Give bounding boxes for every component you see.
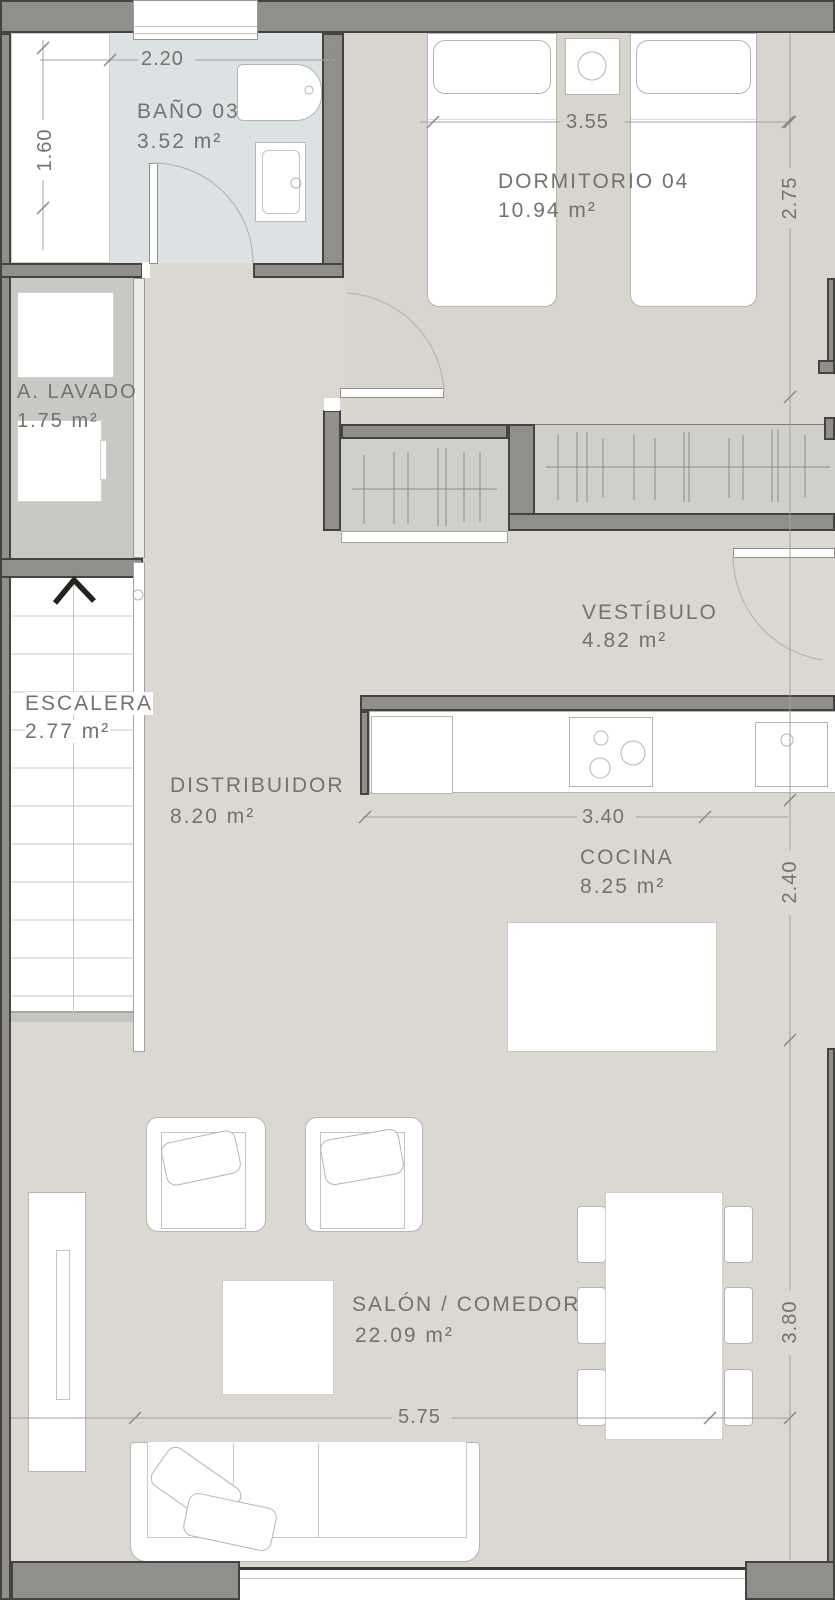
closet-left-door bbox=[341, 531, 508, 543]
stairs-handrail bbox=[133, 562, 145, 1052]
closet-right-floor bbox=[535, 424, 835, 513]
wall-closet-right-bottom bbox=[508, 513, 835, 531]
wall-top bbox=[0, 0, 835, 33]
pillow-bed-right bbox=[636, 40, 751, 94]
wall-laundry-right bbox=[133, 278, 145, 558]
closet-left-floor bbox=[341, 439, 508, 531]
blanket-line-right bbox=[631, 119, 756, 120]
nightstand bbox=[565, 38, 620, 95]
dining-chair bbox=[577, 1287, 606, 1344]
room-area-cocina: 8.25 m² bbox=[580, 875, 665, 898]
room-area-dormitorio: 10.94 m² bbox=[498, 199, 597, 222]
bathroom-window-sill bbox=[134, 26, 257, 27]
wall-bottom-right bbox=[745, 1561, 835, 1600]
room-label-lavado: A. LAVADO bbox=[17, 381, 138, 403]
bedroom-door-leaf bbox=[340, 388, 444, 398]
dim-bedroom-depth: 2.75 bbox=[779, 156, 801, 240]
dining-chair bbox=[577, 1206, 606, 1263]
stairs-landing-strip bbox=[11, 1013, 135, 1022]
dining-chair bbox=[724, 1287, 753, 1344]
dining-chair bbox=[724, 1206, 753, 1263]
room-area-salon: 22.09 m² bbox=[355, 1324, 454, 1347]
wall-bathroom-right bbox=[322, 33, 344, 278]
kitchen-island bbox=[507, 922, 717, 1052]
wall-laundry-bottom bbox=[0, 558, 143, 578]
dim-kitchen-width: 3.40 bbox=[582, 806, 625, 828]
entrance-door-arc bbox=[733, 556, 822, 660]
washbasin bbox=[262, 150, 300, 214]
room-area-vestibulo: 4.82 m² bbox=[582, 629, 667, 652]
dim-kitchen-depth: 2.40 bbox=[779, 840, 801, 924]
entrance-door-leaf bbox=[733, 548, 835, 558]
dryer-handle bbox=[100, 440, 107, 480]
blanket-line-left bbox=[428, 119, 556, 120]
cooktop bbox=[569, 717, 653, 787]
stairs-floor bbox=[11, 578, 135, 1013]
door-jamb bbox=[142, 262, 150, 278]
salon-window-sill bbox=[240, 1578, 745, 1579]
coffee-table bbox=[222, 1280, 334, 1395]
dining-table bbox=[605, 1192, 723, 1440]
wall-bathroom-bottom-right bbox=[253, 263, 344, 278]
room-label-escalera: ESCALERA bbox=[25, 692, 153, 715]
room-label-salon: SALÓN / COMEDOR bbox=[352, 1293, 580, 1316]
bathroom-left-bay bbox=[11, 33, 110, 263]
door-jamb bbox=[324, 398, 340, 411]
wall-right-salon bbox=[827, 1048, 835, 1600]
fridge bbox=[371, 716, 453, 794]
dim-bathroom-width: 2.20 bbox=[141, 48, 184, 70]
tv bbox=[56, 1250, 70, 1400]
salon-window bbox=[240, 1567, 745, 1600]
room-label-vestibulo: VESTÍBULO bbox=[582, 601, 718, 624]
wall-kitchen-back bbox=[360, 695, 835, 711]
wall-bathroom-bottom-left bbox=[0, 263, 143, 278]
room-area-bano: 3.52 m² bbox=[137, 130, 222, 153]
room-label-bano: BAÑO 03 bbox=[137, 100, 240, 123]
washing-machine bbox=[17, 292, 114, 378]
wall-closet-left-top bbox=[341, 424, 508, 439]
pillow-bed-left bbox=[433, 40, 551, 94]
dryer bbox=[17, 420, 102, 502]
room-label-distribuidor: DISTRIBUIDOR bbox=[170, 774, 345, 797]
wall-bottom-left bbox=[11, 1561, 240, 1600]
kitchen-sink bbox=[755, 722, 828, 787]
room-label-dormitorio: DORMITORIO 04 bbox=[498, 170, 689, 193]
dining-chair bbox=[577, 1369, 606, 1426]
dim-left-bay-height: 1.60 bbox=[34, 108, 56, 192]
dining-chair bbox=[724, 1369, 753, 1426]
floor-plan: 2.20 1.60 BAÑO 03 3.52 m² 3.55 2.75 DORM… bbox=[0, 0, 835, 1600]
dim-salon-width: 5.75 bbox=[398, 1406, 441, 1428]
bathroom-window bbox=[133, 0, 258, 40]
room-area-distribuidor: 8.20 m² bbox=[170, 805, 255, 828]
bathroom-door-leaf bbox=[149, 163, 158, 264]
wall-pier-right-foot bbox=[818, 360, 835, 374]
dim-salon-depth: 3.80 bbox=[779, 1280, 801, 1364]
bathroom-window-sill bbox=[134, 33, 257, 34]
bathtub bbox=[237, 64, 322, 121]
wall-vestibule-stub bbox=[323, 410, 341, 531]
dim-bedroom-width: 3.55 bbox=[566, 111, 609, 133]
wall-pier-closet bbox=[824, 417, 835, 440]
sofa-seat-divider bbox=[318, 1443, 319, 1538]
room-area-escalera: 2.77 m² bbox=[25, 720, 110, 743]
wall-kitchen-stub bbox=[360, 711, 369, 795]
room-area-lavado: 1.75 m² bbox=[17, 410, 99, 432]
room-label-cocina: COCINA bbox=[580, 846, 674, 869]
